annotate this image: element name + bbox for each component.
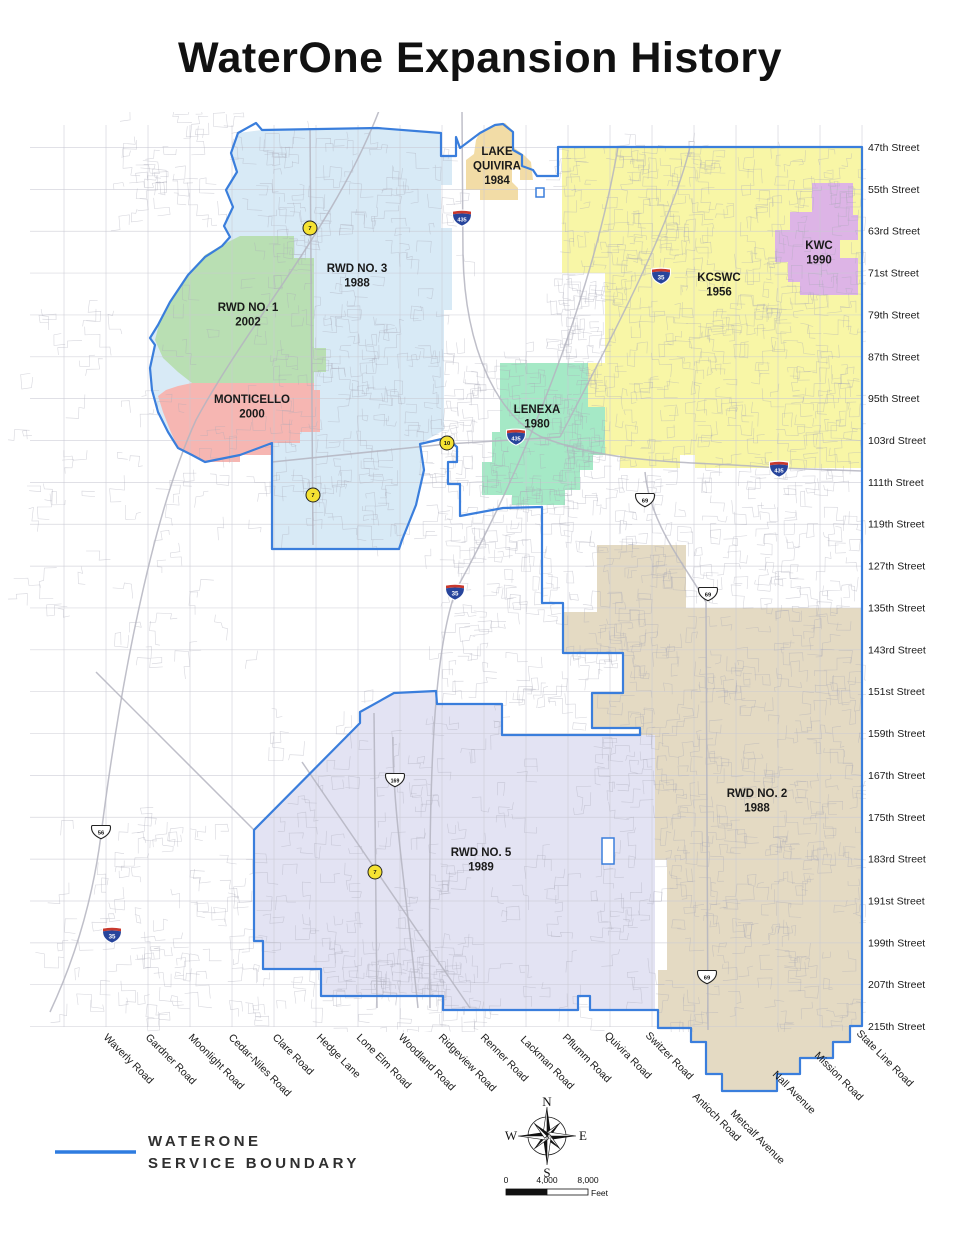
minor-road <box>120 92 130 121</box>
minor-road <box>697 478 712 493</box>
minor-road <box>551 604 562 615</box>
minor-road <box>100 980 110 995</box>
minor-road <box>462 1017 475 1032</box>
state-route-7-shield: 7 <box>368 865 382 879</box>
minor-road <box>136 172 148 183</box>
minor-road <box>471 366 484 377</box>
compass-rose: NESW <box>505 1094 587 1180</box>
minor-road <box>731 585 753 608</box>
minor-road <box>54 334 65 346</box>
minor-road <box>784 510 797 535</box>
shield-number: 35 <box>452 591 459 598</box>
minor-road <box>579 666 590 680</box>
compass-point-light <box>518 1136 547 1140</box>
minor-road <box>75 968 80 981</box>
minor-road <box>790 565 798 579</box>
shield-number: 435 <box>774 469 783 475</box>
minor-road <box>82 491 95 497</box>
minor-road <box>511 520 519 529</box>
minor-road <box>146 1004 168 1018</box>
minor-road <box>185 992 212 1008</box>
minor-road <box>429 1000 442 1013</box>
scale-tick-0: 0 <box>504 1175 509 1185</box>
minor-road <box>85 327 111 356</box>
minor-road <box>77 994 103 1009</box>
minor-road <box>461 520 472 542</box>
minor-road <box>100 914 120 922</box>
minor-road <box>126 505 141 519</box>
minor-road <box>517 686 532 700</box>
scale-unit-label: Feet <box>591 1188 609 1198</box>
minor-road <box>742 505 764 517</box>
minor-road <box>463 455 473 469</box>
minor-road <box>171 996 190 1009</box>
street-label: 111th Street <box>868 477 924 489</box>
minor-road <box>136 161 160 174</box>
state-route-7-shield: 7 <box>306 488 320 502</box>
minor-road <box>786 580 801 599</box>
minor-road <box>526 610 558 622</box>
minor-road <box>175 958 186 968</box>
road-label: State Line Road <box>854 1028 916 1090</box>
minor-road <box>579 536 595 550</box>
minor-road <box>114 183 125 190</box>
scale-tick-4000: 4,000 <box>536 1175 558 1185</box>
minor-road <box>86 301 101 322</box>
minor-road <box>547 294 562 327</box>
minor-road <box>459 627 475 642</box>
shield-number: 169 <box>391 778 400 784</box>
state-route-7-shield: 7 <box>303 221 317 235</box>
minor-road <box>170 543 182 566</box>
minor-road <box>149 613 177 623</box>
shield-number: 7 <box>308 226 311 232</box>
minor-road <box>807 524 819 538</box>
minor-road <box>58 340 82 355</box>
minor-road <box>289 741 305 760</box>
minor-road <box>794 533 807 548</box>
minor-road <box>151 946 161 959</box>
minor-road <box>220 855 237 864</box>
street-label: 159th Street <box>868 728 925 740</box>
minor-road <box>195 491 209 508</box>
minor-road <box>21 373 33 389</box>
us-route-69-shield: 69 <box>699 588 718 601</box>
scale-bar: 0 4,000 8,000 Feet <box>504 1175 609 1198</box>
minor-road <box>456 338 464 353</box>
minor-road <box>589 322 603 347</box>
minor-road <box>7 594 28 610</box>
street-label: 191st Street <box>868 895 925 907</box>
minor-road <box>724 536 748 546</box>
minor-road <box>86 551 110 560</box>
minor-road <box>569 592 578 600</box>
minor-road <box>442 205 453 223</box>
minor-road <box>444 408 459 422</box>
minor-road <box>203 949 222 961</box>
minor-road <box>629 503 637 520</box>
minor-road <box>548 576 557 603</box>
minor-road <box>474 611 487 617</box>
street-labels: 47th Street55th Street63rd Street71st St… <box>868 142 926 1033</box>
road-label: Mission Road <box>812 1050 866 1104</box>
minor-road <box>423 511 450 536</box>
minor-road <box>727 551 747 563</box>
minor-road <box>576 531 592 553</box>
minor-road <box>102 878 109 892</box>
legend: WATERONE SERVICE BOUNDARY <box>55 1133 360 1172</box>
minor-road <box>841 577 858 591</box>
minor-road <box>153 919 167 931</box>
minor-road <box>173 111 192 123</box>
street-label: 175th Street <box>868 812 925 824</box>
minor-road <box>39 568 57 588</box>
street-label: 55th Street <box>868 184 919 196</box>
minor-road <box>504 352 521 364</box>
minor-road <box>193 105 202 114</box>
shield-number: 7 <box>311 493 314 499</box>
minor-road <box>183 470 194 487</box>
minor-road <box>115 633 129 648</box>
shield-number: 35 <box>109 934 116 941</box>
minor-road <box>464 366 478 385</box>
minor-road <box>140 409 154 427</box>
minor-road <box>521 509 541 523</box>
minor-road <box>502 587 517 598</box>
minor-road <box>551 297 575 315</box>
minor-road <box>843 586 854 602</box>
minor-road <box>334 1028 348 1040</box>
minor-road <box>186 126 198 137</box>
minor-road <box>78 567 85 585</box>
shield-number: 69 <box>705 592 712 598</box>
minor-road <box>546 583 560 588</box>
minor-road <box>710 496 724 512</box>
minor-road <box>202 219 217 226</box>
minor-road <box>249 520 261 533</box>
minor-road <box>367 996 390 1009</box>
compass-letter-w: W <box>505 1128 518 1143</box>
compass-letter-n: N <box>542 1094 552 1109</box>
minor-road <box>248 1004 256 1020</box>
minor-road <box>828 581 841 601</box>
minor-road <box>442 422 464 432</box>
minor-road <box>310 970 319 997</box>
minor-road <box>585 546 597 566</box>
minor-road <box>255 1016 269 1026</box>
minor-road <box>443 1010 457 1021</box>
boundary-cutout <box>536 188 544 197</box>
minor-road <box>444 389 463 400</box>
minor-road <box>291 977 306 989</box>
minor-road <box>498 613 506 628</box>
minor-road <box>130 456 143 467</box>
minor-road <box>131 209 142 222</box>
minor-road <box>66 395 85 419</box>
minor-road <box>108 311 122 334</box>
minor-road <box>675 502 686 517</box>
minor-road <box>57 940 68 951</box>
minor-road <box>759 557 770 570</box>
minor-road <box>783 486 802 495</box>
minor-road <box>591 466 612 479</box>
minor-road <box>108 955 131 972</box>
minor-road <box>798 589 808 607</box>
minor-road <box>242 964 256 984</box>
minor-road <box>550 698 573 713</box>
minor-road <box>573 723 587 731</box>
minor-road <box>835 543 846 553</box>
minor-road <box>190 870 205 891</box>
minor-road <box>145 953 160 979</box>
minor-road <box>447 506 453 520</box>
street-label: 215th Street <box>868 1021 925 1033</box>
minor-road <box>175 651 190 679</box>
interstate-35-shield: 35 <box>102 927 122 944</box>
minor-road <box>258 481 271 502</box>
minor-road <box>43 484 52 502</box>
minor-road <box>800 491 812 507</box>
minor-road <box>150 621 160 645</box>
minor-road <box>136 658 163 668</box>
minor-road <box>135 908 141 924</box>
minor-road <box>797 588 818 604</box>
minor-road <box>175 166 198 179</box>
minor-road <box>414 531 435 539</box>
minor-road <box>115 867 129 878</box>
minor-road <box>171 485 181 503</box>
minor-road <box>138 837 146 853</box>
minor-road <box>61 820 74 835</box>
minor-road <box>65 919 78 934</box>
minor-road <box>311 999 322 1022</box>
minor-road <box>272 708 283 717</box>
minor-road <box>165 496 179 526</box>
minor-road <box>439 1014 450 1032</box>
minor-road <box>230 929 255 950</box>
minor-road <box>171 889 180 908</box>
scale-tick-8000: 8,000 <box>577 1175 599 1185</box>
minor-road <box>121 981 136 1014</box>
road-label: Clare Road <box>270 1032 316 1078</box>
minor-road <box>483 662 497 672</box>
minor-road <box>229 1001 242 1017</box>
minor-road <box>376 1027 386 1039</box>
street-label: 127th Street <box>868 561 925 573</box>
us-route-56-shield: 56 <box>92 826 111 839</box>
minor-road <box>264 973 270 987</box>
minor-road <box>460 421 478 426</box>
minor-road <box>563 571 574 583</box>
minor-road <box>115 852 124 867</box>
legend-label-line1: WATERONE <box>148 1133 262 1150</box>
major-highway <box>96 672 254 830</box>
minor-road <box>694 547 702 555</box>
minor-road <box>806 478 819 493</box>
minor-road <box>0 430 30 441</box>
minor-road <box>110 475 125 502</box>
minor-road <box>457 388 481 416</box>
minor-road <box>577 315 591 330</box>
shield-number: 7 <box>373 870 376 876</box>
shield-number: 435 <box>457 218 466 224</box>
shield-number: 69 <box>642 498 649 504</box>
compass-point-light <box>547 1136 551 1165</box>
minor-road <box>39 315 49 330</box>
minor-road <box>624 511 636 524</box>
minor-road <box>162 845 173 852</box>
minor-road <box>237 891 252 916</box>
minor-road <box>463 640 472 660</box>
minor-road <box>213 113 227 128</box>
shield-number: 10 <box>444 441 450 447</box>
shield-number: 35 <box>658 275 665 282</box>
minor-road <box>111 215 129 231</box>
minor-road <box>507 597 519 624</box>
minor-road <box>123 137 135 157</box>
street-label: 119th Street <box>868 519 925 531</box>
minor-road <box>602 489 618 509</box>
minor-road <box>784 482 797 503</box>
street-label: 207th Street <box>868 979 925 991</box>
minor-road <box>52 491 65 505</box>
shield-number: 56 <box>98 830 105 836</box>
minor-road <box>218 517 224 540</box>
expansion-map: 4353543543535356969695616977710 RWD NO. … <box>0 0 960 1248</box>
minor-road <box>132 832 151 848</box>
minor-road <box>157 560 166 573</box>
minor-road <box>547 339 572 353</box>
minor-road <box>711 530 721 545</box>
minor-road <box>446 193 469 205</box>
minor-road <box>119 992 128 1005</box>
boundary-cutout <box>602 838 614 864</box>
minor-road <box>212 907 227 926</box>
minor-road <box>473 630 489 636</box>
minor-road <box>443 669 453 687</box>
minor-road <box>824 507 843 520</box>
minor-road <box>846 557 857 571</box>
minor-road <box>453 681 464 699</box>
minor-road <box>517 657 543 681</box>
street-label: 79th Street <box>868 309 919 321</box>
minor-road <box>277 1001 286 1009</box>
minor-road <box>91 1000 105 1012</box>
minor-road <box>197 826 206 837</box>
minor-road <box>190 829 202 841</box>
minor-road <box>464 622 506 632</box>
minor-road <box>456 468 470 478</box>
street-label: 47th Street <box>868 142 919 154</box>
minor-road <box>344 715 352 733</box>
minor-road <box>548 684 562 706</box>
street-label: 135th Street <box>868 602 925 614</box>
minor-road <box>454 605 477 616</box>
region-fills <box>150 123 862 1091</box>
shield-number: 69 <box>704 975 711 981</box>
minor-road <box>189 579 213 591</box>
street-label: 103rd Street <box>868 435 926 447</box>
minor-road <box>137 955 151 969</box>
minor-road <box>786 537 794 549</box>
minor-road <box>505 569 514 582</box>
minor-road <box>153 838 163 847</box>
minor-road <box>141 936 166 940</box>
minor-road <box>755 580 771 585</box>
minor-road <box>577 495 598 503</box>
minor-road <box>483 587 502 596</box>
minor-road <box>138 199 149 211</box>
street-label: 183rd Street <box>868 854 926 866</box>
minor-road <box>218 201 227 220</box>
legend-label-line2: SERVICE BOUNDARY <box>148 1155 360 1172</box>
minor-road <box>509 594 527 608</box>
minor-road <box>27 486 41 492</box>
minor-road <box>147 1012 160 1031</box>
minor-road <box>815 482 828 496</box>
minor-road <box>166 95 189 115</box>
minor-road <box>448 484 458 500</box>
minor-road <box>119 823 129 841</box>
minor-road <box>48 883 69 904</box>
scale-bar-empty-segment <box>547 1189 588 1195</box>
street-label: 71st Street <box>868 268 919 280</box>
minor-road <box>234 878 246 897</box>
minor-road <box>253 997 265 1015</box>
minor-road <box>533 576 540 590</box>
minor-road <box>200 178 217 194</box>
minor-road <box>761 599 772 610</box>
minor-road <box>589 285 596 309</box>
minor-road <box>173 933 189 948</box>
minor-road <box>123 156 140 176</box>
compass-letter-e: E <box>579 1128 587 1143</box>
minor-road <box>215 615 228 641</box>
minor-road <box>427 505 449 514</box>
minor-road <box>245 651 257 669</box>
minor-road <box>566 531 572 548</box>
minor-road <box>758 569 772 591</box>
compass-point-light <box>547 1132 576 1136</box>
minor-road <box>64 450 87 460</box>
minor-road <box>506 652 528 662</box>
shield-number: 435 <box>511 437 520 443</box>
minor-road <box>785 512 797 519</box>
minor-road <box>150 822 167 841</box>
minor-road <box>547 341 563 349</box>
minor-road <box>247 477 266 492</box>
minor-road <box>849 539 861 551</box>
minor-road <box>732 500 747 525</box>
road-label: Nall Avenue <box>770 1069 818 1117</box>
state-route-10-shield: 10 <box>440 436 454 450</box>
minor-road <box>359 1014 373 1023</box>
interstate-35-shield: 35 <box>445 584 465 601</box>
street-label: 151st Street <box>868 686 925 698</box>
minor-road <box>269 736 284 761</box>
minor-road <box>710 523 718 538</box>
minor-road <box>498 552 513 557</box>
minor-road <box>233 934 254 965</box>
minor-road <box>622 475 640 491</box>
interstate-435-shield: 435 <box>452 210 472 227</box>
minor-road <box>86 359 103 376</box>
street-label: 63rd Street <box>868 226 920 238</box>
minor-road <box>472 431 494 458</box>
minor-road <box>188 193 208 228</box>
street-label: 87th Street <box>868 351 919 363</box>
minor-road <box>590 322 599 332</box>
